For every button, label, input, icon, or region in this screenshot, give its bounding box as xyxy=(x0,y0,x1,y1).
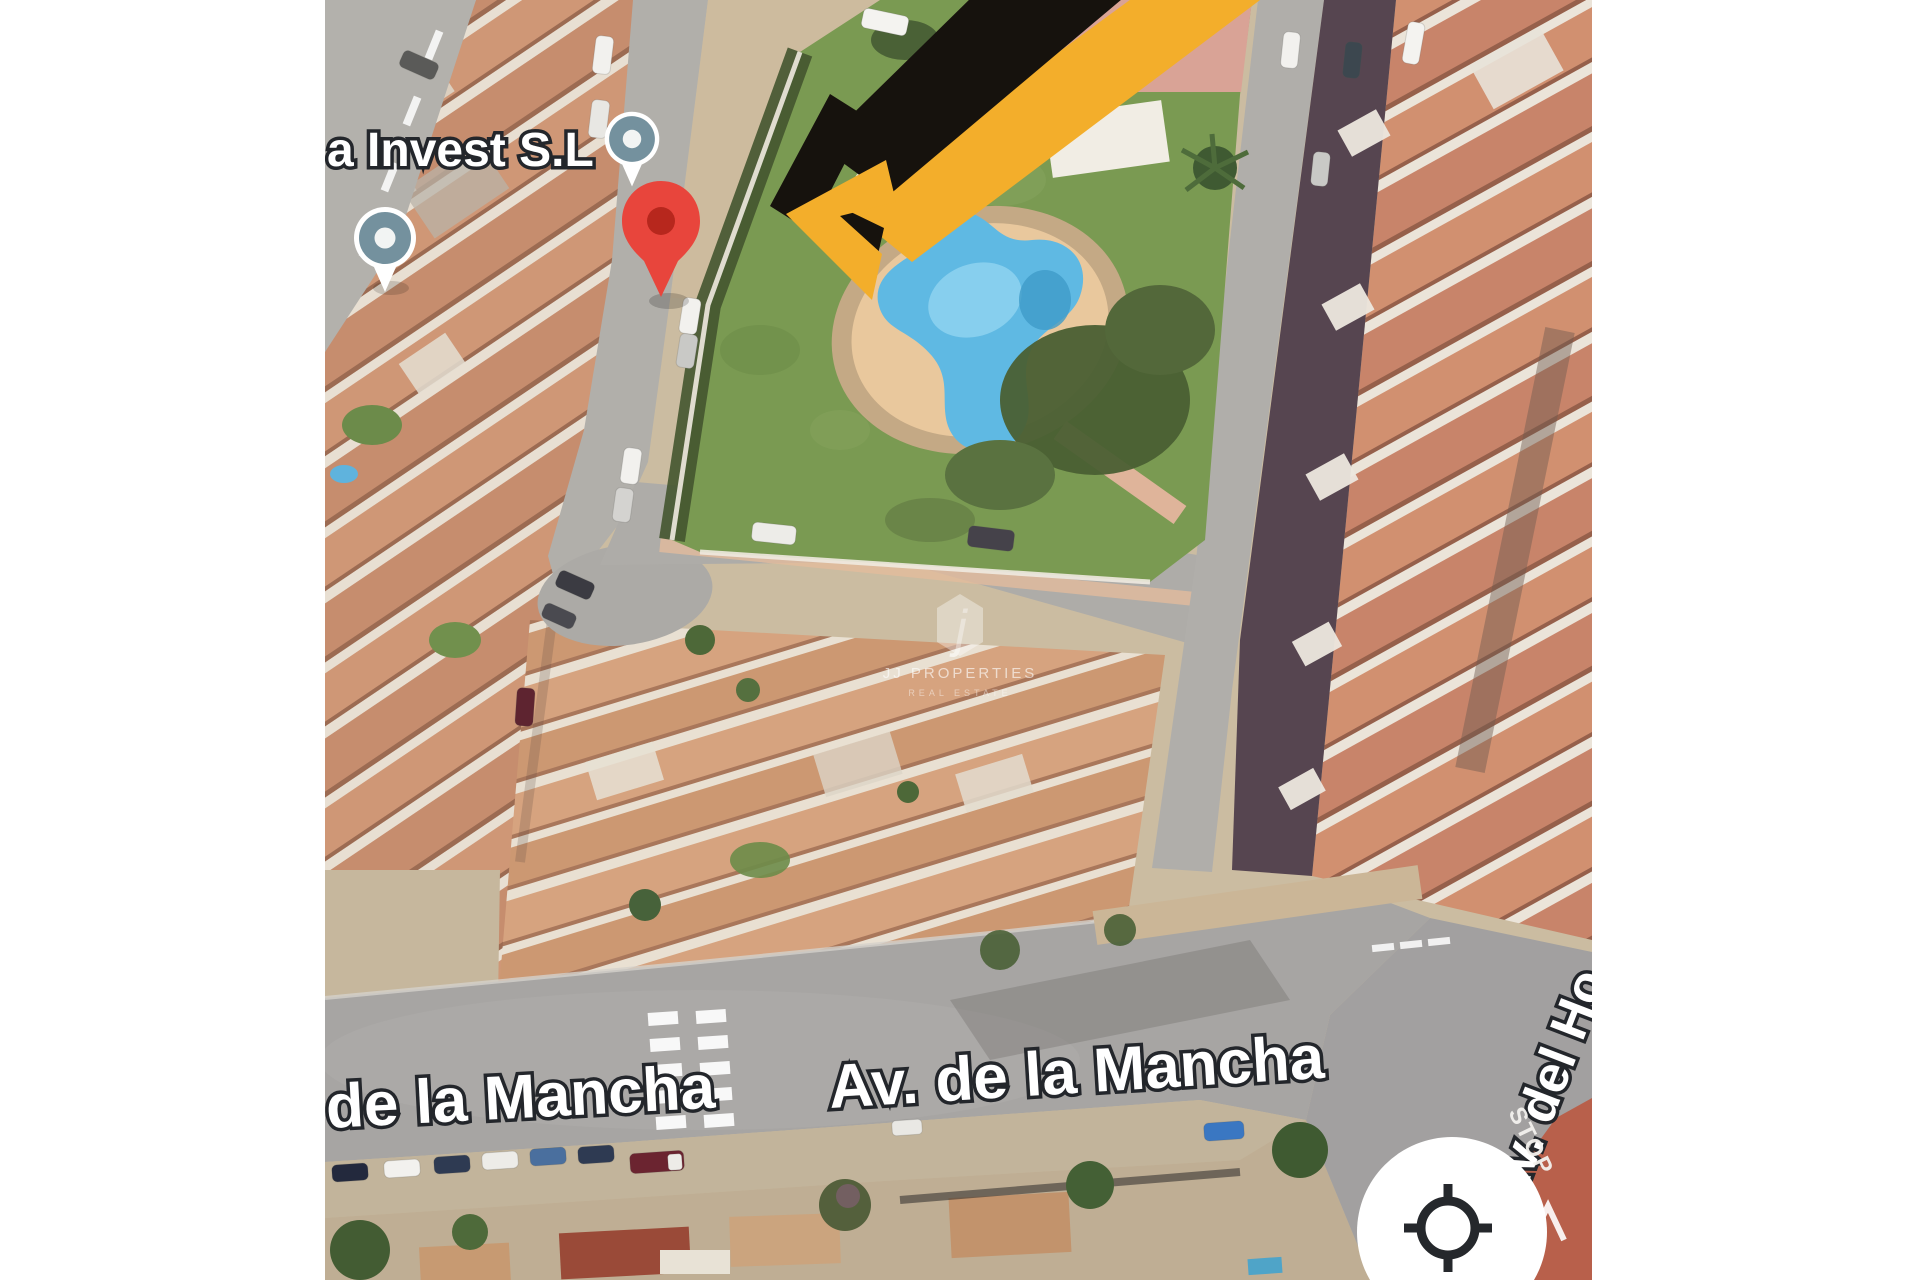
screenshot-root: a Invest S.L de la Mancha Av. de la Manc… xyxy=(0,0,1920,1280)
map-viewport[interactable]: a Invest S.L de la Mancha Av. de la Manc… xyxy=(0,0,1920,1280)
watermark-title: JJ PROPERTIES xyxy=(883,665,1038,682)
watermark-subtitle: REAL ESTATE xyxy=(908,688,1011,698)
small-private-pool xyxy=(330,465,358,483)
letterbox-left xyxy=(0,0,325,1280)
label-business[interactable]: a Invest S.L xyxy=(327,124,594,177)
letterbox-right xyxy=(1592,0,1920,1280)
red-pin-inner-dot xyxy=(647,207,675,235)
